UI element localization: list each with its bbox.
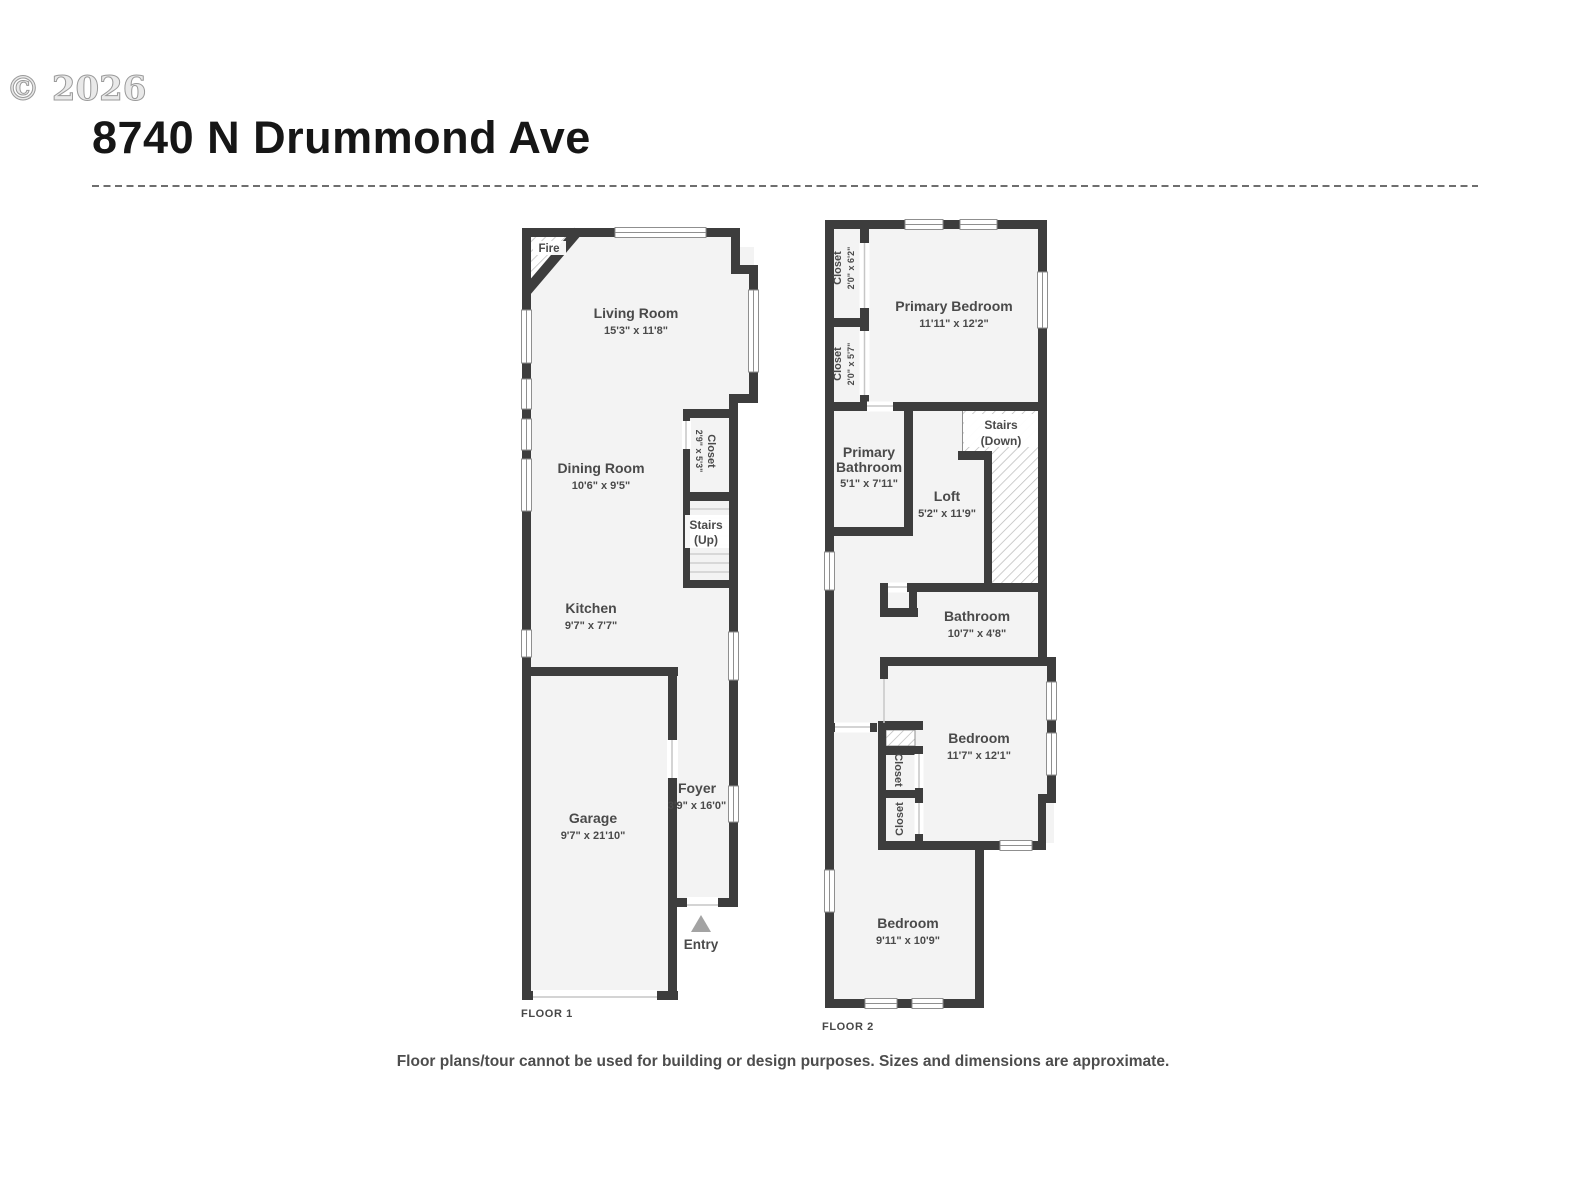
closet-b-dims: 2'0" x 5'7" xyxy=(846,343,856,386)
window xyxy=(1038,272,1048,328)
window xyxy=(522,379,532,409)
window xyxy=(729,632,739,680)
window xyxy=(825,552,835,590)
floorplan-page: © 2026 8740 N Drummond Ave xyxy=(0,0,1584,1188)
primary-bathroom-dims: 5'1" x 7'11" xyxy=(840,478,898,490)
page-title: 8740 N Drummond Ave xyxy=(92,112,591,163)
window xyxy=(905,220,943,230)
primary-bathroom-label-1: Primary xyxy=(843,444,895,460)
bathroom-label: Bathroom xyxy=(944,608,1010,624)
kitchen-label: Kitchen xyxy=(565,600,616,616)
primary-bedroom-label: Primary Bedroom xyxy=(895,298,1012,314)
entry-label: Entry xyxy=(684,937,719,952)
floor2-caption: FLOOR 2 xyxy=(822,1021,874,1033)
closet-a-dims: 2'0" x 6'2" xyxy=(846,247,856,290)
window xyxy=(615,228,706,238)
entry-arrow-icon xyxy=(691,915,711,932)
closet-a-label: Closet xyxy=(832,251,844,285)
primary-bedroom-dims: 11'11" x 12'2" xyxy=(919,318,989,330)
bedroom-bottom-label: Bedroom xyxy=(877,915,938,931)
window xyxy=(749,290,759,372)
living-room-dims: 15'3" x 11'8" xyxy=(604,325,668,337)
foyer-dims: 3'9" x 16'0" xyxy=(668,800,726,812)
window xyxy=(912,999,943,1009)
window xyxy=(1047,733,1057,775)
stairs-down-label-2: (Down) xyxy=(981,434,1022,448)
garage-label: Garage xyxy=(569,810,617,826)
primary-bathroom-label-2: Bathroom xyxy=(836,459,902,475)
window xyxy=(522,630,532,657)
window xyxy=(1047,682,1057,720)
window xyxy=(1000,841,1032,851)
window xyxy=(825,870,835,912)
bedroom-mid-dims: 11'7" x 12'1" xyxy=(947,750,1011,762)
floor1-plan: Fire Living Room 15'3" x 11'8" Dining Ro… xyxy=(521,228,759,1021)
window xyxy=(522,419,532,450)
dining-room-dims: 10'6" x 9'5" xyxy=(572,480,630,492)
disclaimer-text: Floor plans/tour cannot be used for buil… xyxy=(397,1053,1170,1070)
chimney-chase-hatch xyxy=(886,730,915,746)
foyer-label: Foyer xyxy=(678,780,717,796)
closet-d-label: Closet xyxy=(894,802,906,836)
floor1-closet-dims: 2'9" x 5'3" xyxy=(694,430,704,473)
closet-b-label: Closet xyxy=(832,347,844,381)
kitchen-dims: 9'7" x 7'7" xyxy=(565,620,617,632)
floor1-room-fills xyxy=(526,232,754,996)
living-room-label: Living Room xyxy=(594,305,679,321)
window xyxy=(522,459,532,511)
garage-dims: 9'7" x 21'10" xyxy=(561,830,626,842)
dining-room-label: Dining Room xyxy=(557,460,644,476)
window xyxy=(960,220,997,230)
stairs-up-label-2: (Up) xyxy=(694,533,718,547)
loft-dims: 5'2" x 11'9" xyxy=(918,508,976,520)
fireplace-label: Fire xyxy=(538,243,559,255)
loft-label: Loft xyxy=(934,488,961,504)
floorplan-canvas: © 2026 8740 N Drummond Ave xyxy=(0,0,1584,1188)
floor2-plan: Primary Bedroom 11'11" x 12'2" Closet 2'… xyxy=(822,220,1057,1034)
bedroom-bottom-dims: 9'11" x 10'9" xyxy=(876,935,940,947)
stairs-down-label-1: Stairs xyxy=(984,418,1018,432)
bathroom-dims: 10'7" x 4'8" xyxy=(948,628,1006,640)
window xyxy=(865,999,897,1009)
copyright-watermark: © 2026 xyxy=(6,69,146,109)
floor1-closet-label: Closet xyxy=(705,434,717,468)
stairs-up-label-1: Stairs xyxy=(689,518,723,532)
bedroom-mid-label: Bedroom xyxy=(948,730,1009,746)
window xyxy=(522,310,532,363)
floor1-caption: FLOOR 1 xyxy=(521,1008,573,1020)
closet-c-label: Closet xyxy=(892,753,904,787)
window xyxy=(729,786,739,822)
